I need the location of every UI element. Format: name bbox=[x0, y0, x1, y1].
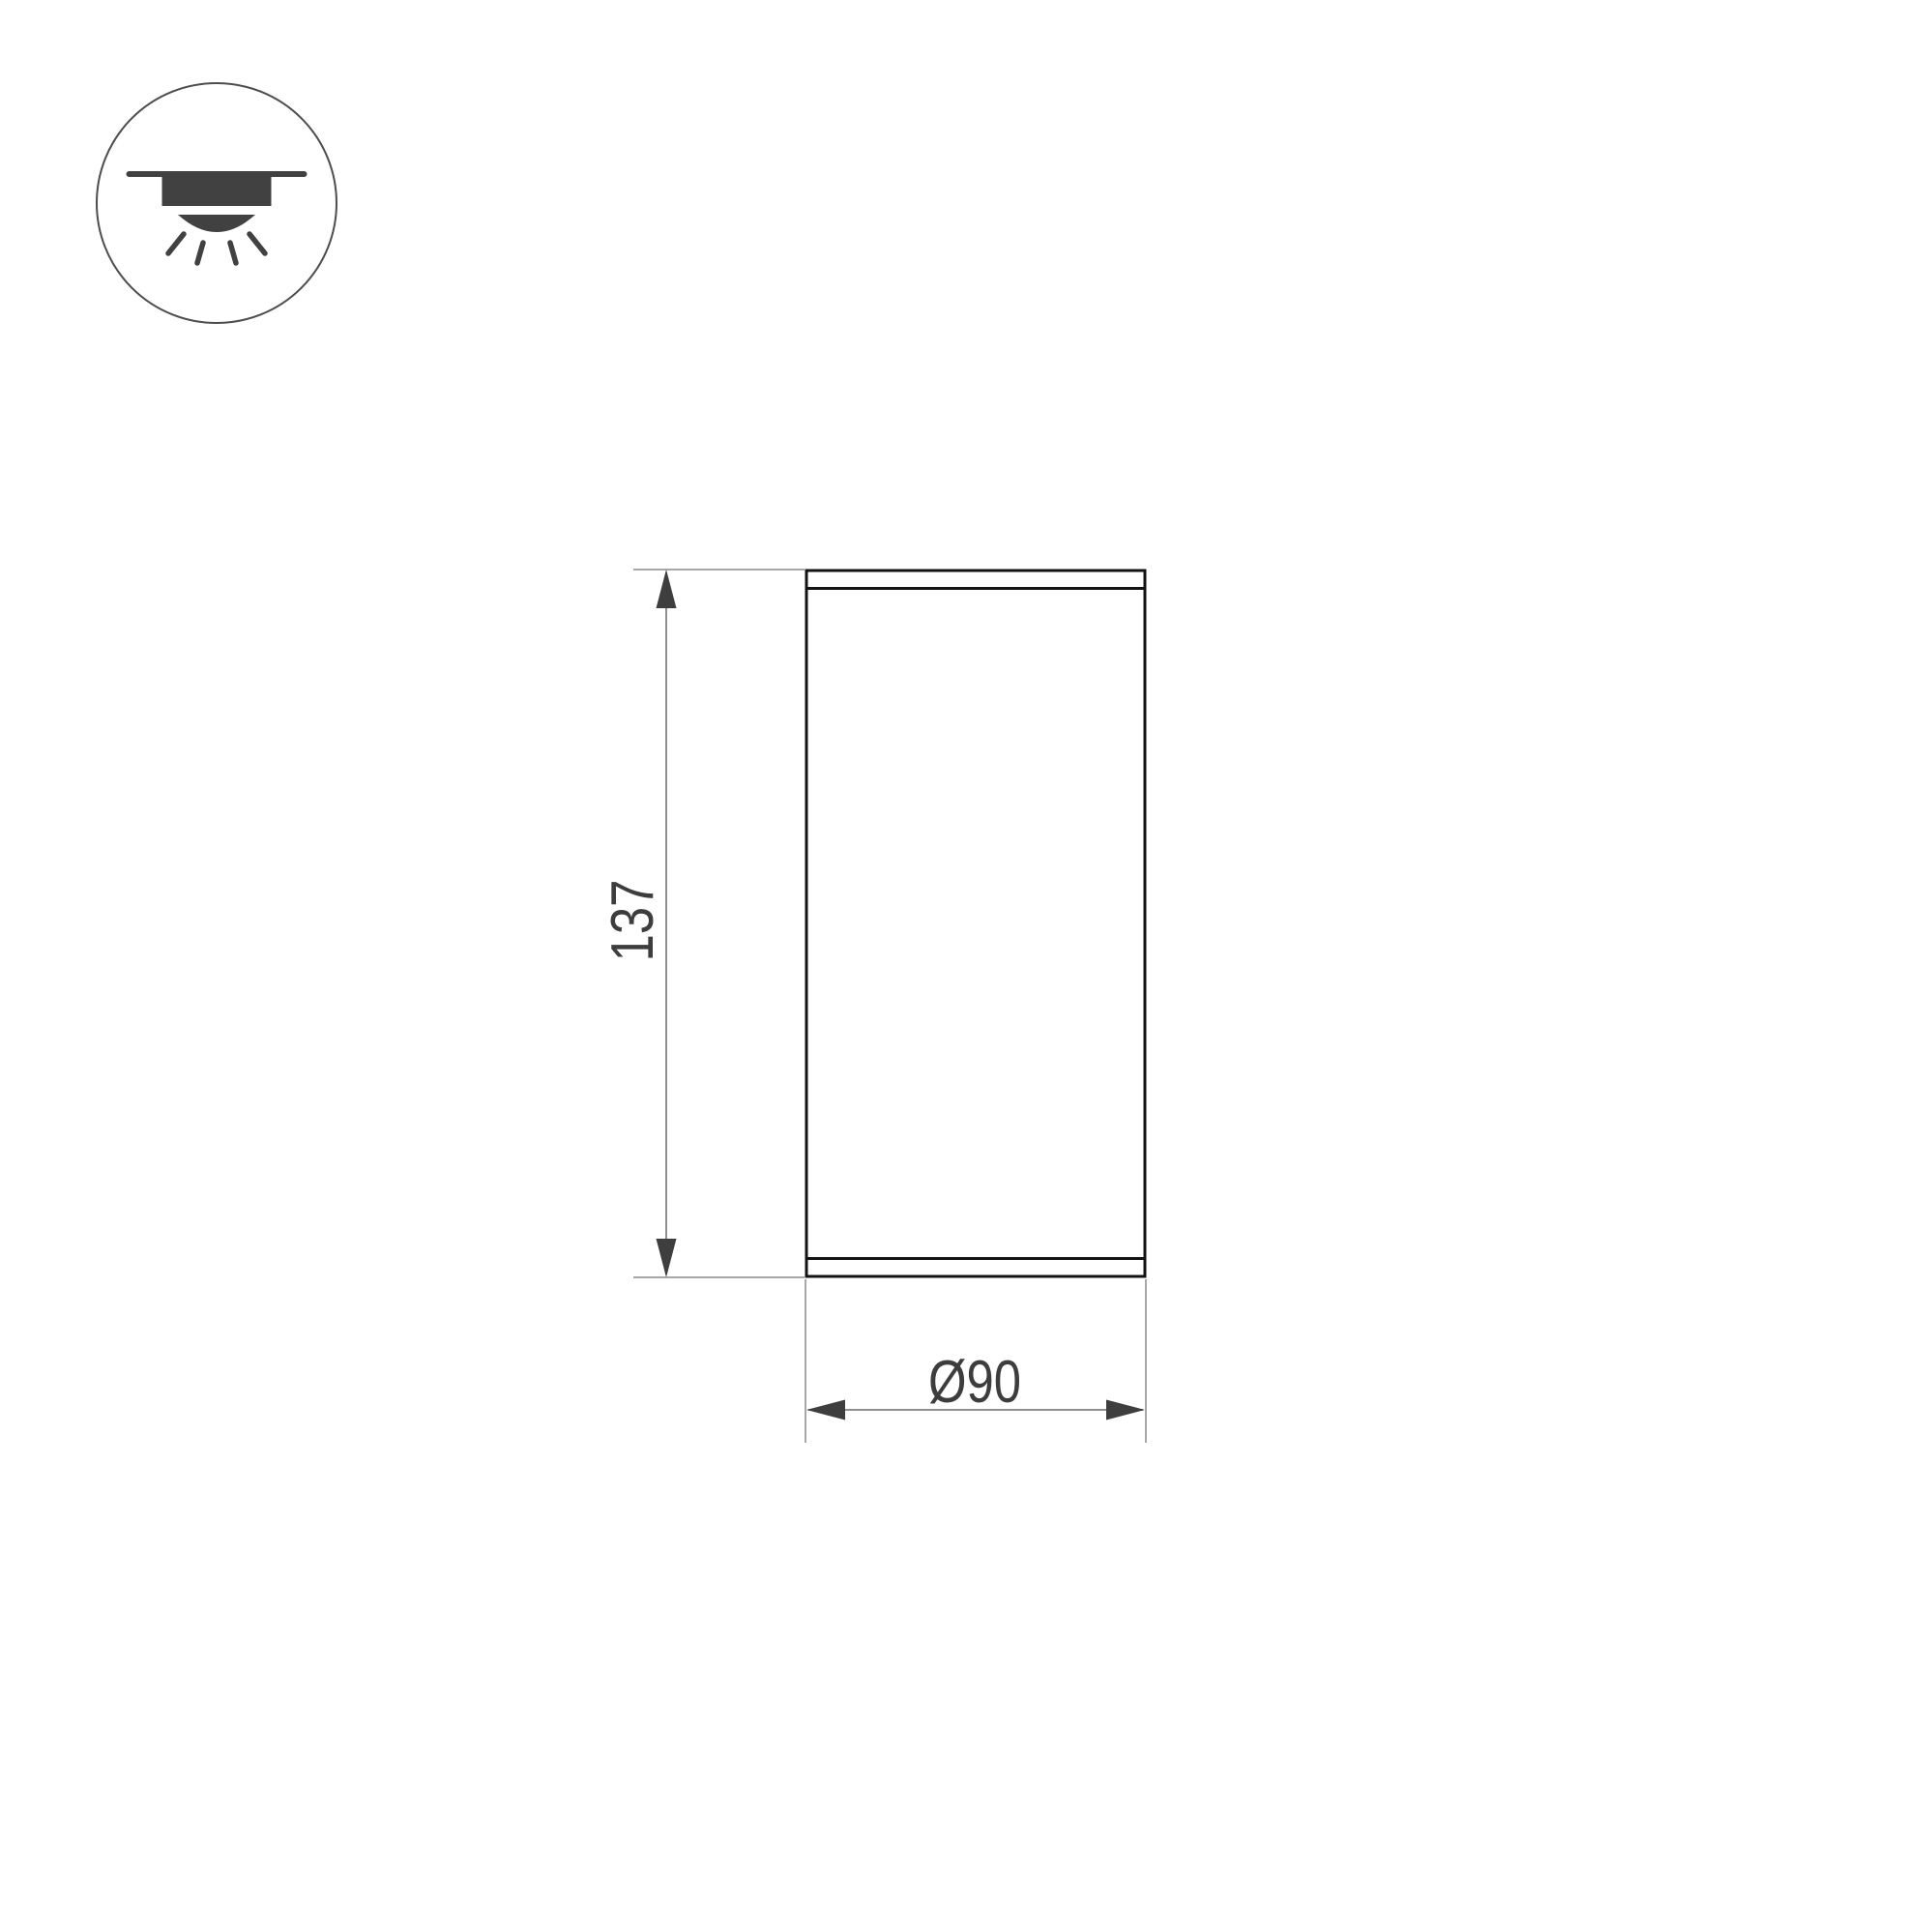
diameter-dimension-label: Ø90 bbox=[928, 1353, 1021, 1413]
diameter-arrow-left bbox=[806, 1400, 845, 1420]
height-arrow-up bbox=[657, 570, 677, 608]
height-arrow-down bbox=[657, 1239, 677, 1277]
icon-ray-outer-left bbox=[168, 234, 184, 253]
icon-ray-outer-right bbox=[249, 234, 265, 253]
technical-drawing bbox=[0, 0, 1932, 1932]
icon-light-dome bbox=[178, 215, 255, 232]
product-outline bbox=[806, 571, 1145, 1276]
icon-ray-inner-right bbox=[230, 243, 236, 263]
height-dimension-label: 137 bbox=[603, 880, 663, 962]
cylinder-body bbox=[806, 571, 1145, 1276]
surface-mounted-downlight-icon bbox=[97, 83, 337, 323]
diameter-arrow-right bbox=[1106, 1400, 1145, 1420]
drawing-canvas: 137 Ø90 bbox=[0, 0, 1932, 1932]
icon-light-rays bbox=[168, 234, 265, 263]
icon-ray-inner-left bbox=[197, 243, 203, 263]
icon-fixture-body bbox=[162, 176, 272, 206]
